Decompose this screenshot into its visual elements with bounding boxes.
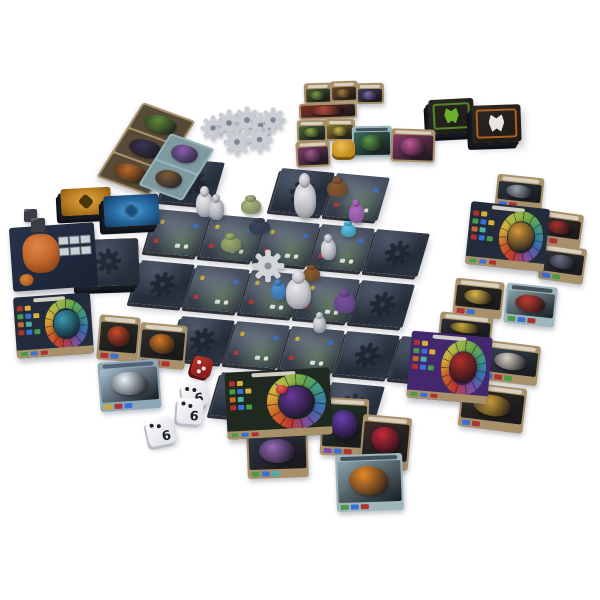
market-card <box>297 120 327 143</box>
die-white: 6 <box>144 415 176 447</box>
card-title-banner <box>301 122 323 125</box>
market-card-teal-monster <box>352 126 393 158</box>
player-board-blue-hero <box>13 292 94 358</box>
gold-token-stack <box>332 140 355 157</box>
mini-monster-dark <box>249 221 270 234</box>
gear-emblem <box>364 290 401 318</box>
resource-track-rows <box>412 340 436 371</box>
die-white: 6 <box>176 397 204 425</box>
gear-emblem <box>184 326 221 354</box>
market-card <box>325 119 355 141</box>
gray-cube <box>31 218 45 232</box>
deck-orange-monsters <box>471 104 521 143</box>
card-art <box>337 460 401 503</box>
gear-emblem <box>144 270 181 298</box>
mini-hero-white-rat <box>286 278 311 309</box>
deck-blue <box>103 194 160 228</box>
board-bottom-strip <box>406 389 487 404</box>
token-bear-brown <box>327 181 348 197</box>
stat-icon-row <box>339 502 402 510</box>
resource-track-rows <box>17 305 41 335</box>
player-board-yellow-hero <box>465 201 550 272</box>
ability-card-flame-lion <box>335 453 404 512</box>
mini-monster-green <box>241 199 261 214</box>
boardgame-product-photo: 666 <box>0 0 600 600</box>
mini-monster-purple-crystal <box>334 294 355 313</box>
deck-emblem <box>78 193 94 209</box>
ability-card-meat <box>503 282 558 327</box>
dungeon-tile-facedown <box>364 229 430 277</box>
market-card <box>330 81 359 103</box>
card-slots <box>58 234 90 256</box>
ability-card-lightning <box>97 359 161 412</box>
die-red <box>190 355 214 379</box>
card-art <box>332 87 356 101</box>
boss-board-purple-dragon <box>224 367 332 439</box>
red-gem-token <box>276 385 287 394</box>
gear-emblem <box>379 239 416 267</box>
die-value: 6 <box>161 427 177 444</box>
mini-monster-blue <box>271 283 286 300</box>
resource-track-rows <box>471 210 496 241</box>
card-art <box>301 104 355 118</box>
die-value: 6 <box>189 409 203 425</box>
card-title-banner <box>356 128 388 132</box>
gear-token <box>246 126 273 153</box>
card-art <box>354 132 390 156</box>
card-art <box>140 329 185 361</box>
gear-emblem <box>349 341 386 369</box>
card-art <box>100 366 159 403</box>
market-card-pink-monster <box>390 128 435 163</box>
card-art <box>327 125 353 139</box>
orange-dial <box>19 273 34 286</box>
market-card <box>295 140 330 168</box>
deck-emblem <box>121 200 142 220</box>
card-art <box>299 126 325 140</box>
resource-track-rows <box>229 381 252 411</box>
mini-hero-white-large <box>294 182 316 218</box>
stat-icon-row <box>250 469 307 477</box>
mini-hero-white <box>209 199 224 220</box>
player-board-red-demon <box>406 331 493 405</box>
card-art <box>298 146 329 166</box>
dungeon-tile-revealed <box>224 321 290 369</box>
card-title-banner <box>360 85 380 88</box>
card-art <box>393 134 434 160</box>
dungeon-tile-facedown <box>349 280 415 328</box>
dungeon-tile-facedown <box>334 331 400 379</box>
dungeon-tile-revealed <box>279 326 345 374</box>
dungeon-tile-revealed <box>184 265 250 313</box>
mini-monster-purple <box>349 204 364 223</box>
mini-monster-green <box>221 237 241 252</box>
market-card <box>304 83 333 105</box>
token-crystal-blue <box>341 224 356 237</box>
item-card-phoenix <box>96 314 141 362</box>
gear-emblem <box>93 248 123 275</box>
card-art <box>506 290 555 319</box>
mini-hero-white <box>321 239 336 260</box>
card-art <box>306 89 330 103</box>
card-art <box>358 89 382 102</box>
deck-green-monsters <box>428 98 475 134</box>
card-title-banner <box>329 121 351 124</box>
card-art <box>248 434 306 470</box>
forge-robot-board <box>9 222 98 292</box>
robot-art <box>21 232 61 274</box>
market-card-wide <box>299 102 358 120</box>
market-card <box>356 83 384 104</box>
gear-token-on-tile <box>251 249 285 283</box>
board-bottom-strip <box>17 345 94 358</box>
card-art <box>99 321 138 353</box>
mini-hero-white <box>313 316 326 333</box>
